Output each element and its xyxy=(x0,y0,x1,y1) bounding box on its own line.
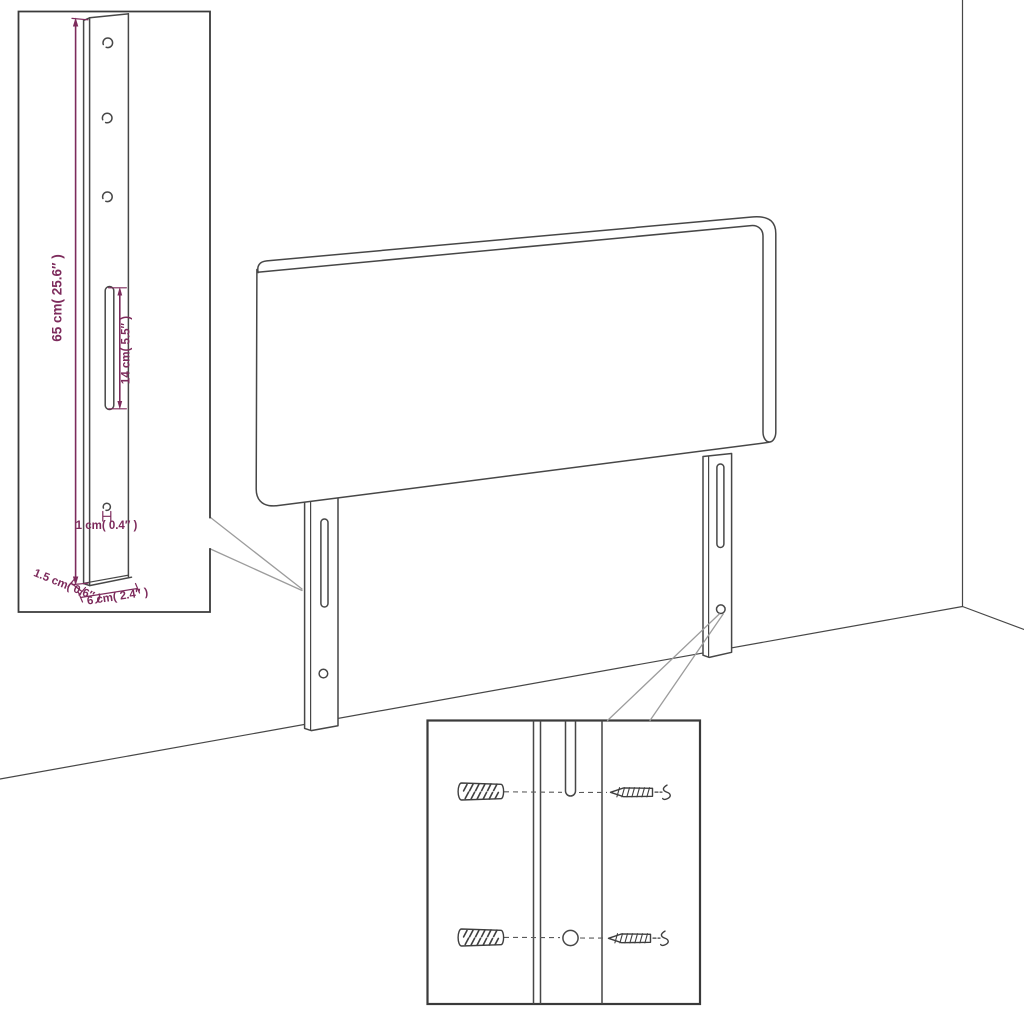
floor-line-right xyxy=(963,607,1024,630)
detail-box-fixings xyxy=(428,721,701,1005)
detail-frame-fixings xyxy=(428,721,701,1005)
panel-face xyxy=(256,216,776,506)
detail-box-leg: 65 cm( 25.6″ ) 14 cm( 5.5″ ) 1 cm( 0.4″ … xyxy=(19,12,211,613)
callout-left-detail xyxy=(211,518,303,591)
diagram-canvas: 65 cm( 25.6″ ) 14 cm( 5.5″ ) 1 cm( 0.4″ … xyxy=(0,0,1024,1024)
headboard-panel xyxy=(256,216,776,506)
dim-label-height: 65 cm( 25.6″ ) xyxy=(50,254,65,342)
headboard-legs xyxy=(305,454,732,731)
assembly-diagram: 65 cm( 25.6″ ) 14 cm( 5.5″ ) 1 cm( 0.4″ … xyxy=(0,0,1024,1024)
dim-label-hole: 1 cm( 0.4″ ) xyxy=(76,520,138,532)
callout-lines xyxy=(211,518,724,721)
dim-label-slot: 14 cm( 5.5″ ) xyxy=(121,316,133,384)
